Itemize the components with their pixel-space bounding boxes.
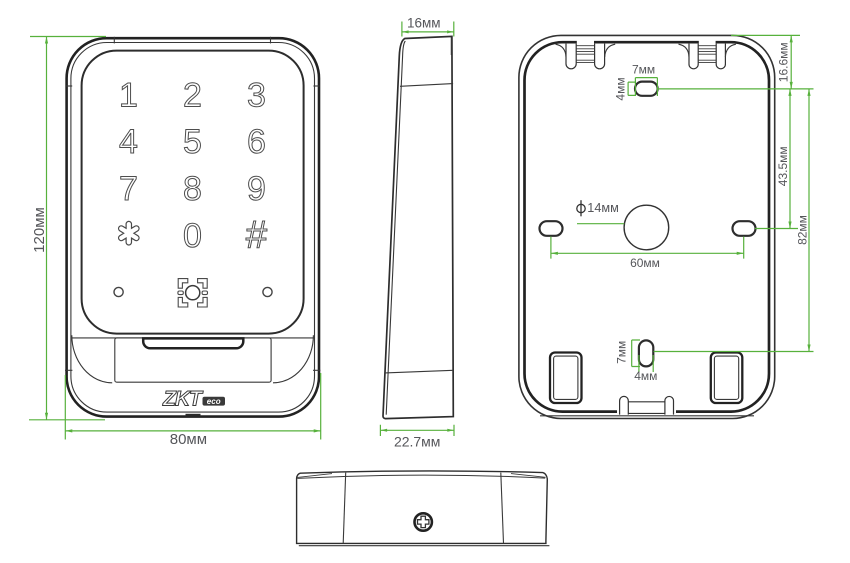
svg-text:ZKT: ZKT	[162, 388, 204, 411]
svg-text:4мм: 4мм	[634, 369, 657, 383]
svg-text:2: 2	[183, 76, 202, 114]
svg-text:7мм: 7мм	[615, 341, 629, 364]
svg-text:4: 4	[119, 123, 138, 161]
svg-text:7: 7	[119, 170, 138, 208]
svg-text:5: 5	[183, 123, 202, 161]
svg-text:22.7мм: 22.7мм	[394, 433, 441, 449]
svg-text:16мм: 16мм	[407, 15, 441, 30]
svg-text:7мм: 7мм	[632, 62, 655, 76]
svg-text:4мм: 4мм	[614, 77, 628, 100]
svg-text:60мм: 60мм	[630, 256, 660, 270]
svg-text:#: #	[246, 214, 268, 257]
svg-text:80мм: 80мм	[170, 431, 207, 448]
svg-text:8: 8	[183, 170, 202, 208]
svg-text:3: 3	[247, 76, 266, 114]
svg-text:9: 9	[247, 170, 266, 208]
svg-text:6: 6	[247, 123, 266, 161]
svg-text:43.5мм: 43.5мм	[776, 146, 790, 186]
svg-text:14мм: 14мм	[587, 201, 619, 215]
svg-text:eco: eco	[207, 397, 221, 406]
svg-text:0: 0	[183, 217, 202, 255]
svg-text:1: 1	[119, 76, 138, 114]
svg-text:120мм: 120мм	[31, 207, 48, 253]
svg-text:16.6мм: 16.6мм	[777, 42, 791, 82]
svg-text:82мм: 82мм	[796, 215, 810, 245]
